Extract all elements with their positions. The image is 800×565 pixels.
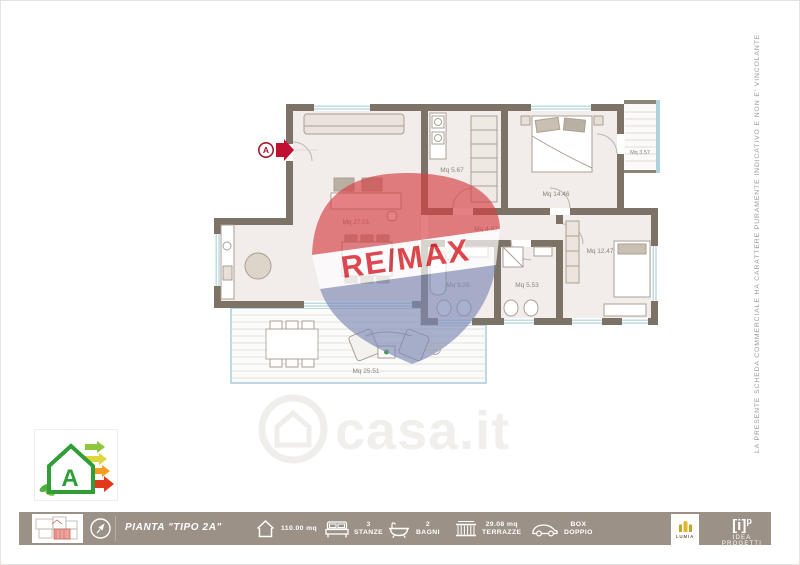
thumbnail-miniplan bbox=[32, 514, 83, 543]
stat-terraces: 29.08 mqTERRAZZE bbox=[455, 516, 521, 542]
room-label-camera: Mq 12.47 bbox=[586, 248, 613, 255]
energy-class-letter: A bbox=[61, 465, 78, 492]
footer-divider bbox=[115, 516, 116, 541]
plan-title: PIANTA "TIPO 2A" bbox=[125, 522, 222, 533]
floorplan-sheet: casa.it bbox=[0, 0, 800, 565]
energy-class-badge: A bbox=[34, 429, 118, 501]
footer-bar: PIANTA "TIPO 2A" 110.00 mq 3STANZE bbox=[19, 512, 771, 545]
balcony bbox=[624, 100, 660, 173]
lumia-label: LUMIA bbox=[676, 534, 694, 539]
stat-baths: 2BAGNI bbox=[387, 516, 440, 542]
idea-progetti-brand: [i]p IDEA PROGETTI bbox=[713, 513, 771, 547]
terrace-icon bbox=[455, 519, 477, 539]
room-label-balcone: Mq 3.57 bbox=[630, 150, 650, 156]
remax-watermark: RE/MAX R bbox=[304, 167, 509, 372]
brand-name: IDEA PROGETTI bbox=[713, 535, 771, 547]
plan-thumbnail bbox=[32, 514, 83, 543]
bed-icon bbox=[325, 520, 349, 539]
car-icon bbox=[531, 521, 559, 537]
svg-text:R: R bbox=[432, 347, 437, 354]
energy-bar-green bbox=[85, 441, 105, 453]
stat-rooms: 3STANZE bbox=[325, 516, 383, 542]
casa-watermark-text: casa.it bbox=[335, 401, 510, 461]
room-label-camera-matrimoniale: Mq 14.46 bbox=[542, 191, 569, 198]
room-label-bagno-2: Mq 5.53 bbox=[515, 282, 539, 289]
entrance-letter: A bbox=[263, 145, 269, 155]
disclaimer-text: LA PRESENTE SCHEDA COMMERCIALE HA CARATT… bbox=[754, 81, 769, 453]
lumia-building-icon bbox=[678, 520, 693, 533]
stat-surface: 110.00 mq bbox=[255, 516, 317, 542]
brand-mark: [i]p bbox=[713, 513, 771, 534]
casa-watermark: casa.it bbox=[251, 389, 561, 469]
compass-icon bbox=[89, 517, 112, 540]
lumia-logo: LUMIA bbox=[671, 514, 699, 545]
casa-house-icon bbox=[277, 413, 309, 445]
bath-icon bbox=[387, 520, 411, 539]
stat-garage: BOXDOPPIO bbox=[531, 516, 593, 542]
house-icon bbox=[255, 519, 276, 539]
casa-circle-icon bbox=[262, 398, 324, 460]
